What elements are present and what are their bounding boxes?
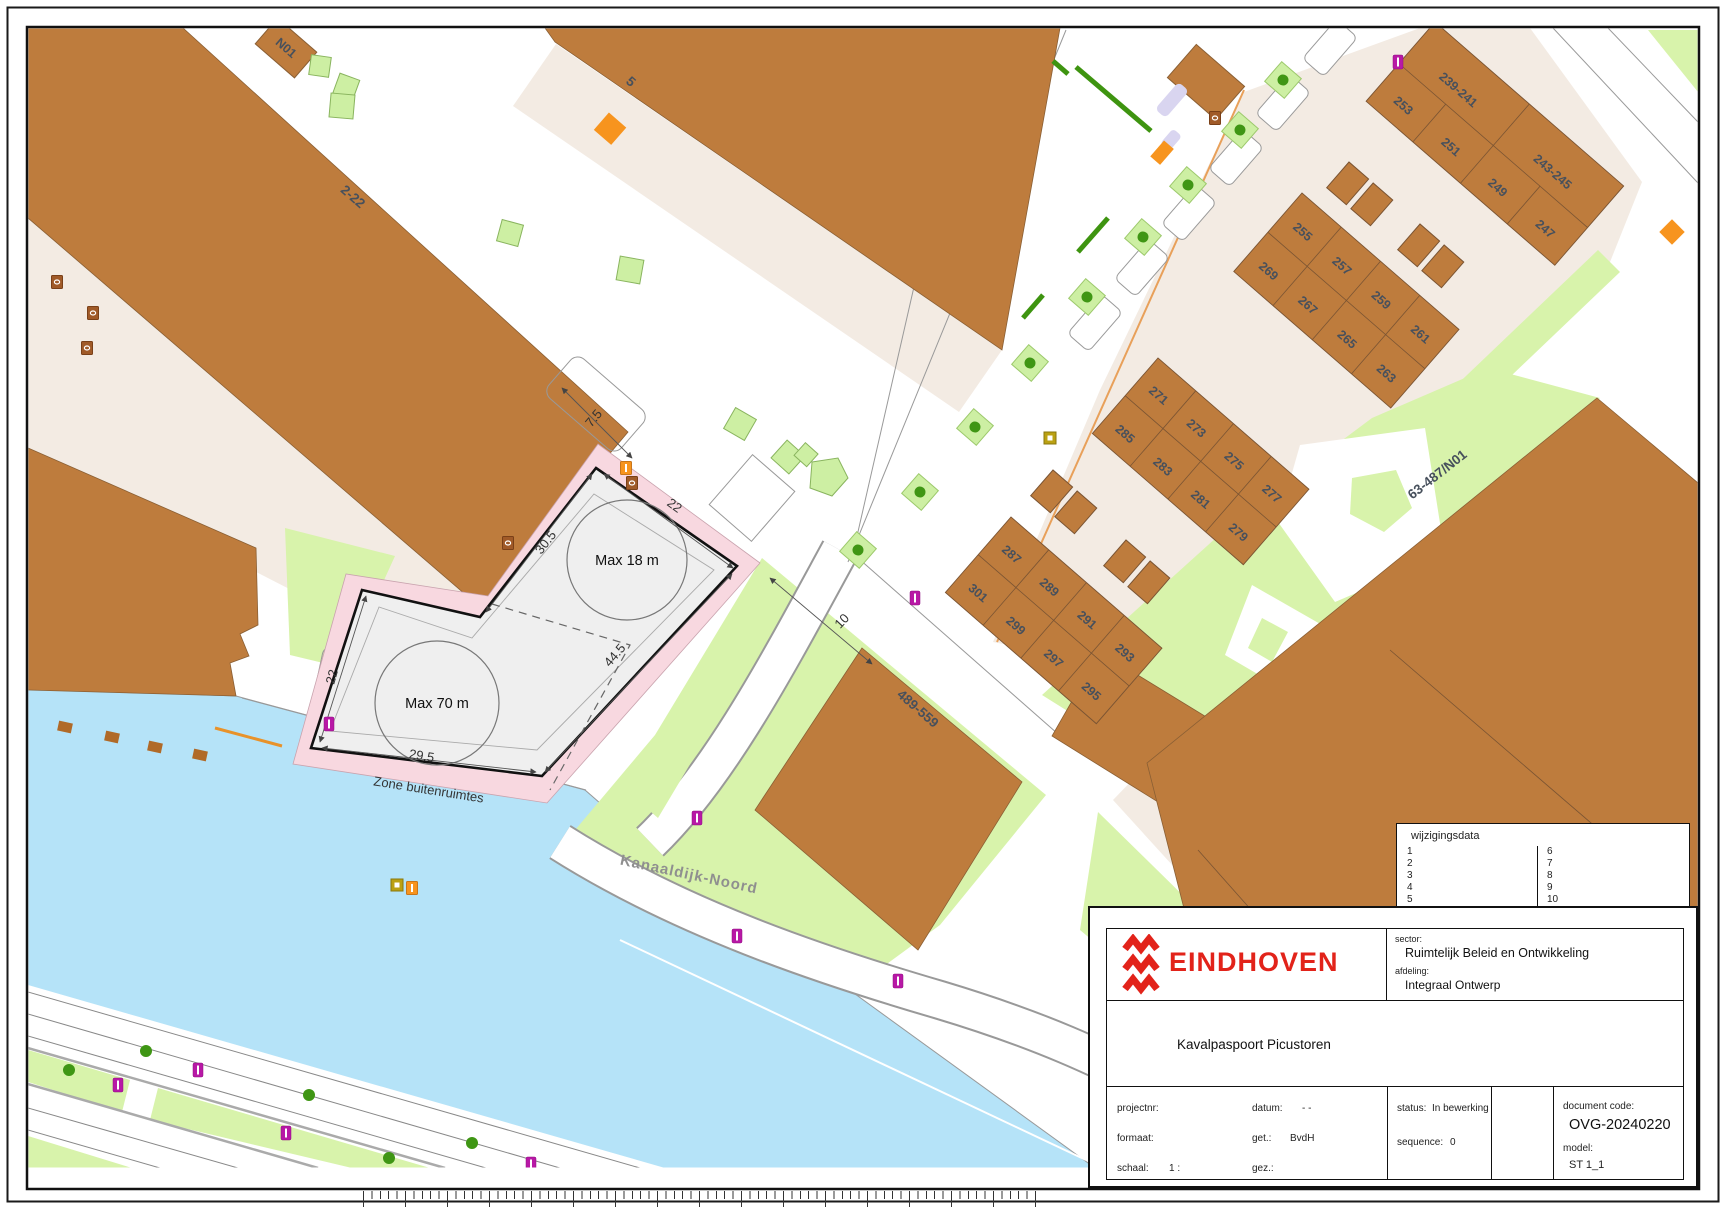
schaal-value: 1 : [1169,1163,1180,1174]
title-row: Kavalpaspoort Picustoren [1107,1001,1683,1087]
schaal-label: schaal: [1117,1163,1149,1174]
number-badge-icon [52,276,63,289]
gez-label: gez.: [1252,1163,1274,1174]
scale-ruler [363,1191,1041,1208]
datum-value: - - [1302,1103,1311,1114]
revision-row: 6 [1547,846,1558,858]
projectnr-label: projectnr: [1117,1103,1159,1114]
title-block: EINDHOVEN sector: Ruimtelijk Beleid en O… [1088,906,1698,1188]
revision-row: 10 [1547,894,1558,906]
logo-cell: EINDHOVEN [1107,929,1387,1000]
magenta-marker-icon [692,811,702,825]
revision-rows-right: 6 7 8 9 10 [1547,846,1558,906]
magenta-marker-icon [910,591,920,605]
model-label: model: [1563,1143,1593,1154]
eindhoven-logo-icon [1121,934,1165,996]
orange-badge-icon [621,462,632,475]
revision-row: 7 [1547,858,1558,870]
sequence-label: sequence: [1397,1137,1443,1148]
magenta-marker-icon [193,1063,203,1077]
formaat-label: formaat: [1117,1133,1154,1144]
revision-row: 4 [1407,882,1413,894]
revision-row: 9 [1547,882,1558,894]
max-height-70-label: Max 70 m [405,696,469,712]
magenta-marker-icon [732,929,742,943]
yellow-badge-icon [391,879,403,891]
revision-rows-left: 1 2 3 4 5 [1407,846,1413,906]
datum-label: datum: [1252,1103,1283,1114]
magenta-marker-icon [526,1157,536,1171]
max-height-18-label: Max 18 m [595,553,659,569]
number-badge-icon [88,307,99,320]
status-value: In bewerking [1432,1103,1489,1114]
sector-value: Ruimtelijk Beleid en Ontwikkeling [1405,946,1589,960]
title-block-fields-row: projectnr: formaat: schaal: 1 : datum: -… [1107,1087,1683,1179]
magenta-marker-icon [281,1126,291,1140]
orange-badge-icon [407,882,418,895]
document-code-value: OVG-20240220 [1569,1117,1671,1133]
title-block-header-row: EINDHOVEN sector: Ruimtelijk Beleid en O… [1107,929,1683,1001]
revision-row: 5 [1407,894,1413,906]
revision-row: 2 [1407,858,1413,870]
revision-row: 1 [1407,846,1413,858]
number-badge-icon [503,537,514,550]
magenta-marker-icon [893,974,903,988]
number-badge-icon [627,477,638,490]
afdeling-value: Integraal Ontwerp [1405,978,1500,992]
magenta-marker-icon [324,717,334,731]
revision-box-title: wijzigingsdata [1411,830,1479,842]
drawing-title: Kavalpaspoort Picustoren [1177,1037,1331,1052]
drawing-sheet: N01 239-241 243-245 253 251 249 247 [0,0,1726,1209]
get-label: get.: [1252,1133,1271,1144]
title-block-inner: EINDHOVEN sector: Ruimtelijk Beleid en O… [1106,928,1684,1180]
yellow-badge-icon [1044,432,1056,444]
revision-row: 3 [1407,870,1413,882]
magenta-marker-icon [1393,55,1403,69]
eindhoven-logo-text: EINDHOVEN [1169,947,1339,978]
model-value: ST 1_1 [1569,1159,1604,1171]
revision-row: 8 [1547,870,1558,882]
sector-label: sector: [1395,934,1422,944]
revision-box: wijzigingsdata 1 2 3 4 5 6 7 8 9 10 [1396,823,1690,907]
number-badge-icon [1210,112,1221,125]
ruler-coarse-ticks [363,1191,1041,1207]
number-badge-icon [82,342,93,355]
get-value: BvdH [1290,1133,1314,1144]
sequence-value: 0 [1450,1137,1456,1148]
sector-cell: sector: Ruimtelijk Beleid en Ontwikkelin… [1387,929,1683,1000]
afdeling-label: afdeling: [1395,966,1429,976]
magenta-marker-icon [113,1078,123,1092]
status-label: status: [1397,1103,1426,1114]
document-code-label: document code: [1563,1101,1634,1112]
